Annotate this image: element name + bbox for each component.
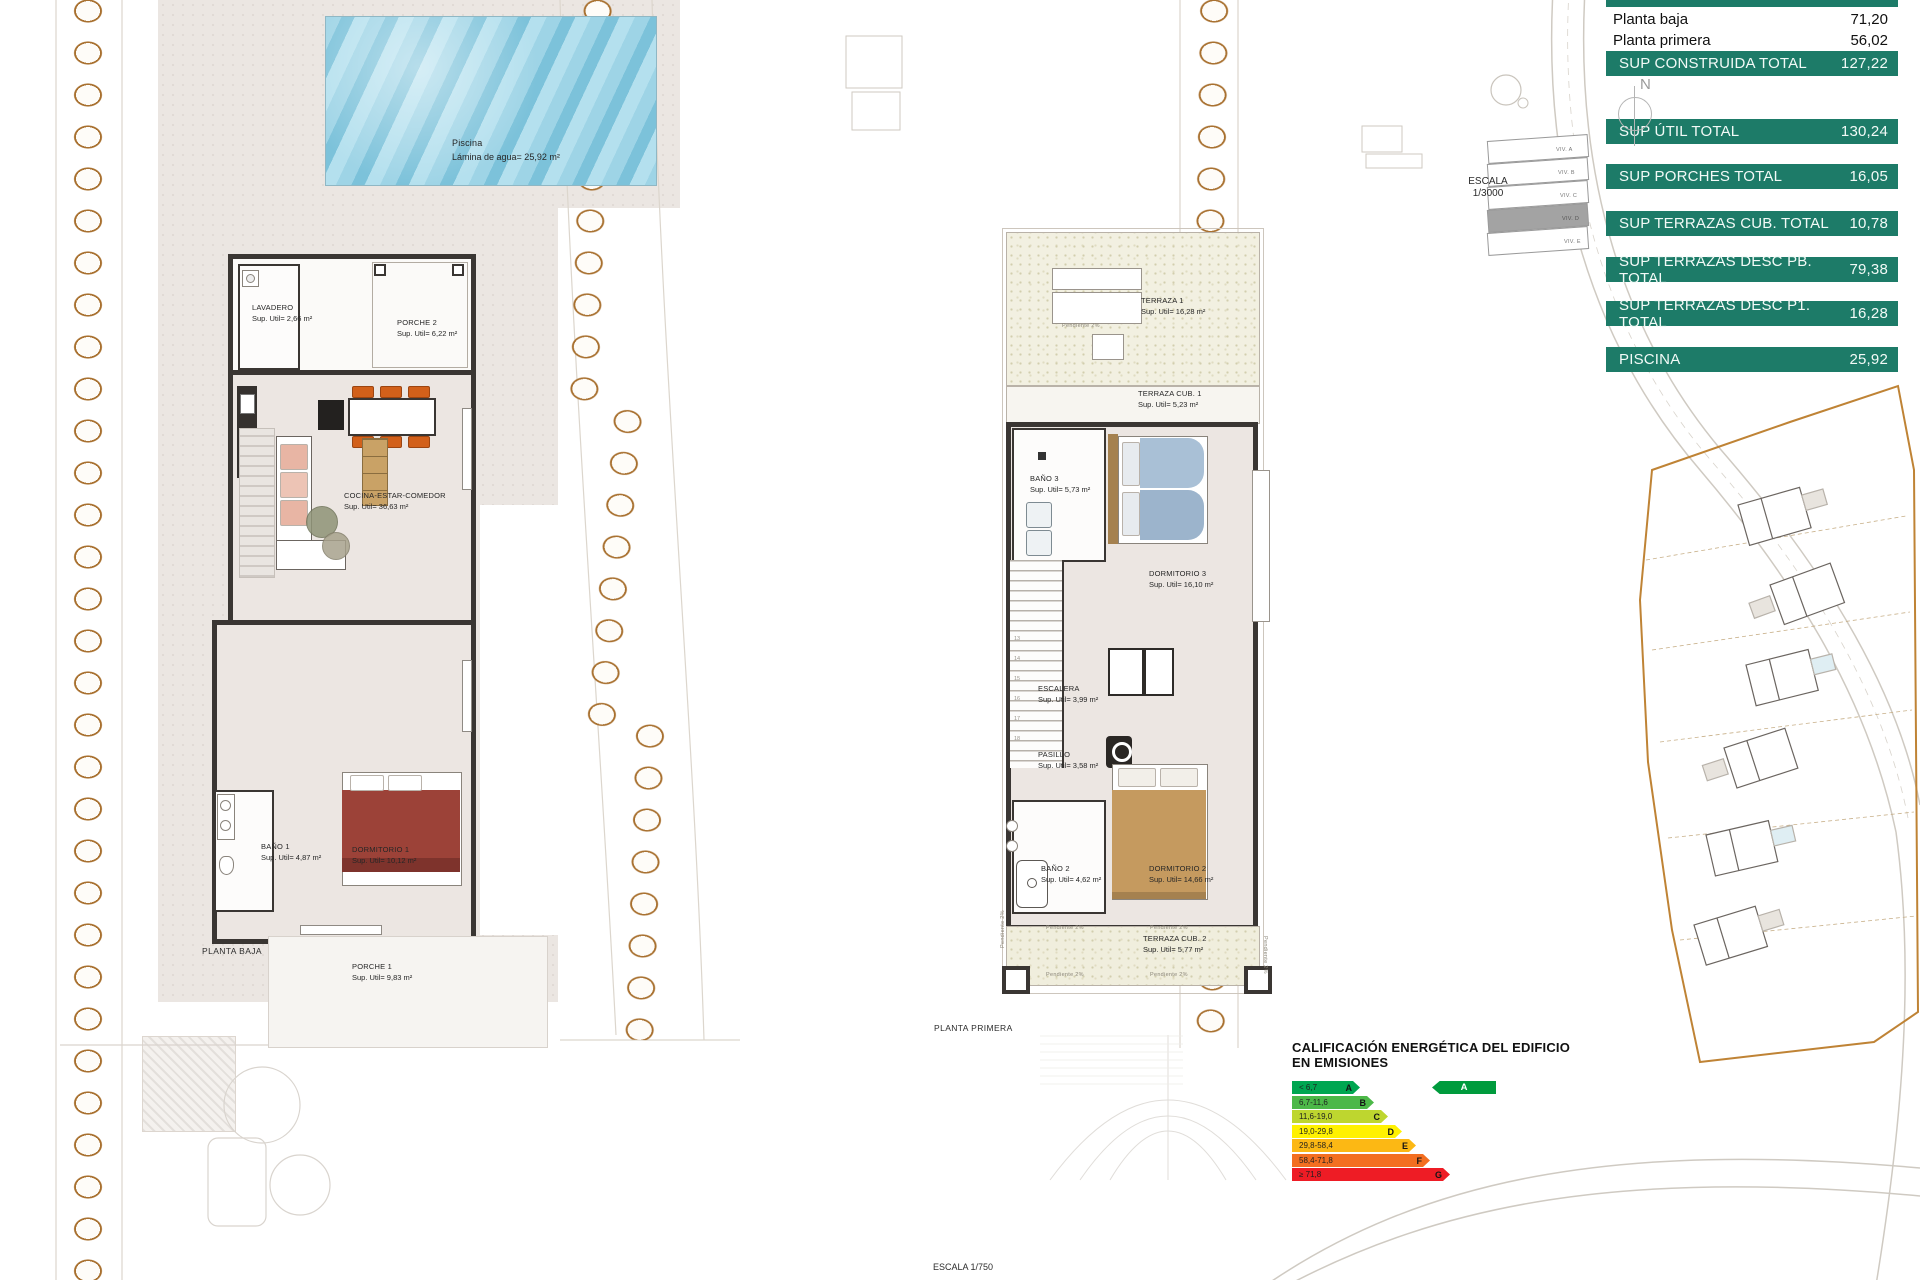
row-value: 127,22 [1841, 55, 1888, 72]
row-label: Planta primera [1613, 32, 1711, 49]
plan-sheet: Piscina Lámina de agua= 25,92 m² [0, 0, 1920, 1280]
porch-column [374, 264, 386, 276]
pb-porche2-floor [372, 262, 468, 368]
bed-1-pillow [350, 775, 384, 791]
garden-underlay [60, 1045, 545, 1226]
slope-note: Pendiente 2% [1062, 323, 1100, 329]
wardrobe [1144, 648, 1174, 696]
room-label-dormitorio2: DORMITORIO 2 Sup. Util= 14,66 m² [1149, 863, 1213, 886]
planter [1052, 292, 1142, 324]
slope-note: Pendiente 2% [1000, 910, 1006, 948]
room-label-bano3: BAÑO 3 Sup. Util= 5,73 m² [1030, 473, 1090, 496]
stair-number: 15 [1014, 676, 1020, 682]
energy-title-line1: CALIFICACIÓN ENERGÉTICA DEL EDIFICIO [1292, 1040, 1612, 1055]
p1-balcony [1252, 470, 1270, 622]
energy-rating-block: CALIFICACIÓN ENERGÉTICA DEL EDIFICIO EN … [1292, 1040, 1612, 1180]
drain-box [1092, 334, 1124, 360]
planta-baja-title: PLANTA BAJA [202, 946, 262, 956]
energy-band-e: 29,8-58,4E [1292, 1139, 1416, 1152]
bed-3-pillow [1122, 492, 1140, 536]
table-row: SUP TERRAZAS DESC P1. TOTAL 16,28 [1606, 301, 1898, 326]
rock-chain-left [64, 0, 112, 1280]
stair-number: 18 [1014, 736, 1020, 742]
washbasin-icon [1006, 820, 1018, 832]
row-value: 10,78 [1849, 215, 1888, 232]
dining-table [348, 398, 436, 436]
washbasin-icon [220, 820, 231, 831]
pb-porche1-floor [268, 936, 548, 1048]
pouf [322, 532, 350, 560]
viv-label: VIV. A [1556, 147, 1573, 153]
room-label-porche1: PORCHE 1 Sup. Util= 9,83 m² [352, 961, 412, 984]
row-label: SUP TERRAZAS CUB. TOTAL [1619, 215, 1829, 232]
site-villas [1694, 481, 1845, 965]
viv-label: VIV. D [1562, 216, 1579, 222]
porch-column [452, 264, 464, 276]
row-value: 79,38 [1849, 261, 1888, 278]
energy-band-d: 19,0-29,8D [1292, 1125, 1402, 1138]
room-label-terraza-cub2: TERRAZA CUB. 2 Sup. Util= 5,77 m² [1143, 933, 1207, 956]
washbasin-icon [1006, 840, 1018, 852]
pool-label: Piscina Lámina de agua= 25,92 m² [452, 137, 560, 164]
shower-drain-icon [1027, 878, 1037, 888]
room-label-pasillo: PASILLO Sup. Util= 3,58 m² [1038, 749, 1098, 772]
table-row: PISCINA 25,92 [1606, 347, 1898, 372]
planter [1052, 268, 1142, 290]
bed-2-pillow [1160, 768, 1198, 787]
room-label-terraza-cub1: TERRAZA CUB. 1 Sup. Util= 5,23 m² [1138, 388, 1202, 411]
row-value: 130,24 [1841, 123, 1888, 140]
viv-label: VIV. E [1564, 239, 1581, 245]
washbasin-icon [220, 800, 231, 811]
p1-terraza-cub2 [1006, 926, 1260, 986]
slope-note: Pendiente 2% [1046, 972, 1084, 978]
window [300, 925, 382, 935]
dining-chair [408, 386, 430, 398]
north-label: N [1640, 76, 1651, 93]
energy-title-line2: EN EMISIONES [1292, 1055, 1612, 1070]
north-arrow-line [1634, 86, 1635, 146]
washer-drum-icon [246, 274, 255, 283]
energy-band-a: < 6,7A [1292, 1081, 1360, 1094]
bed-3-duvet [1140, 490, 1204, 540]
room-label-lavadero: LAVADERO Sup. Util= 2,66 m² [252, 302, 312, 325]
planta-primera-title: PLANTA PRIMERA [934, 1023, 1013, 1033]
row-label: SUP TERRAZAS DESC PB. TOTAL [1619, 253, 1849, 287]
slope-note: Pendiente 2% [1046, 925, 1084, 931]
row-value: 16,05 [1849, 168, 1888, 185]
development-boundary [1640, 386, 1918, 1062]
row-value: 16,28 [1849, 305, 1888, 322]
slope-note: Pendiente 2% [1150, 925, 1188, 931]
row-label: Planta baja [1613, 11, 1688, 28]
room-label-porche2: PORCHE 2 Sup. Util= 6,22 m² [397, 317, 457, 340]
table-row: SUP CONSTRUIDA TOTAL 127,22 [1606, 51, 1898, 76]
slope-note: Pendiente 2% [1150, 972, 1188, 978]
room-label-bano2: BAÑO 2 Sup. Util= 4,62 m² [1041, 863, 1101, 886]
bed-3-duvet [1140, 438, 1204, 488]
row-value: 71,20 [1850, 11, 1888, 28]
row-value: 25,92 [1849, 351, 1888, 368]
north-arrow-icon [1618, 97, 1652, 131]
window [462, 408, 472, 490]
energy-band-f: 58,4-71,8F [1292, 1154, 1430, 1167]
table-header-label: SUP CONSTRUIDA [1619, 0, 1756, 3]
wardrobe [1108, 648, 1144, 696]
table-row: SUP ÚTIL TOTAL 130,24 [1606, 119, 1898, 144]
energy-band-b: 6,7-11,6B [1292, 1096, 1374, 1109]
bed-1-pillow [388, 775, 422, 791]
row-label: SUP PORCHES TOTAL [1619, 168, 1782, 185]
room-label-dormitorio1: DORMITORIO 1 Sup. Util= 10,12 m² [352, 844, 416, 867]
dining-chair [352, 386, 374, 398]
stair-number: 14 [1014, 656, 1020, 662]
table-row: SUP PORCHES TOTAL 16,05 [1606, 164, 1898, 189]
stair-number: 17 [1014, 716, 1020, 722]
dining-chair [408, 436, 430, 448]
stair-number: 16 [1014, 696, 1020, 702]
table-row: SUP TERRAZAS DESC PB. TOTAL 79,38 [1606, 257, 1898, 282]
sofa-cushion [280, 444, 308, 470]
row-label: PISCINA [1619, 351, 1680, 368]
washbasin-icon [1026, 502, 1052, 528]
row-label: SUP TERRAZAS DESC P1. TOTAL [1619, 297, 1849, 331]
living-rug [239, 428, 275, 578]
contour-lines [1050, 1035, 1286, 1180]
table-row: SUP TERRAZAS CUB. TOTAL 10,78 [1606, 211, 1898, 236]
room-label-dormitorio3: DORMITORIO 3 Sup. Util= 16,10 m² [1149, 568, 1213, 591]
gridlines [1040, 1036, 1183, 1084]
dining-chair [380, 386, 402, 398]
room-label-bano1: BAÑO 1 Sup. Util= 4,87 m² [261, 841, 321, 864]
kitchen-sink-icon [240, 394, 255, 414]
energy-scale: < 6,7A 6,7-11,6B 11,6-19,0C 19,0-29,8D 2… [1292, 1081, 1612, 1181]
footer-escala: ESCALA 1/750 [933, 1262, 993, 1272]
room-label-cocina: COCINA-ESTAR-COMEDOR Sup. Util= 36,63 m² [344, 490, 446, 513]
toilet-bowl-icon [1112, 742, 1132, 762]
table-row: Planta baja 71,20 [1606, 11, 1898, 28]
sofa-cushion [280, 472, 308, 498]
row-label: SUP CONSTRUIDA TOTAL [1619, 55, 1807, 72]
wall-marker [1038, 452, 1046, 460]
room-label-escalera: ESCALERA Sup. Util= 3,99 m² [1038, 683, 1098, 706]
energy-band-g: ≥ 71,8G [1292, 1168, 1450, 1181]
slope-note: Pendiente 2% [1262, 936, 1268, 974]
room-label-terraza1: TERRAZA 1 Sup. Util= 16,28 m² [1141, 295, 1205, 318]
terrace-pier [1002, 966, 1030, 994]
kitchen-island [318, 400, 344, 430]
washbasin-icon [1026, 530, 1052, 556]
viv-label: VIV. C [1560, 193, 1577, 199]
bed-2-footboard [1112, 892, 1206, 899]
energy-band-c: 11,6-19,0C [1292, 1110, 1388, 1123]
row-value: 56,02 [1850, 32, 1888, 49]
viv-label: VIV. B [1558, 170, 1575, 176]
escala-3000: ESCALA 1/3000 [1446, 176, 1530, 200]
table-row: Planta primera 56,02 [1606, 32, 1898, 49]
bed-3-headboard [1108, 434, 1118, 544]
window [462, 660, 472, 732]
toilet-icon [219, 856, 234, 875]
bed-2-pillow [1118, 768, 1156, 787]
underlay-buildings [846, 36, 1422, 168]
energy-rating-arrow: A [1432, 1081, 1496, 1094]
bed-3-pillow [1122, 442, 1140, 486]
stair-number: 13 [1014, 636, 1020, 642]
p1-terraza-cub1 [1006, 386, 1260, 424]
table-header: SUP CONSTRUIDA [1606, 0, 1898, 7]
sofa-cushion [280, 500, 308, 526]
